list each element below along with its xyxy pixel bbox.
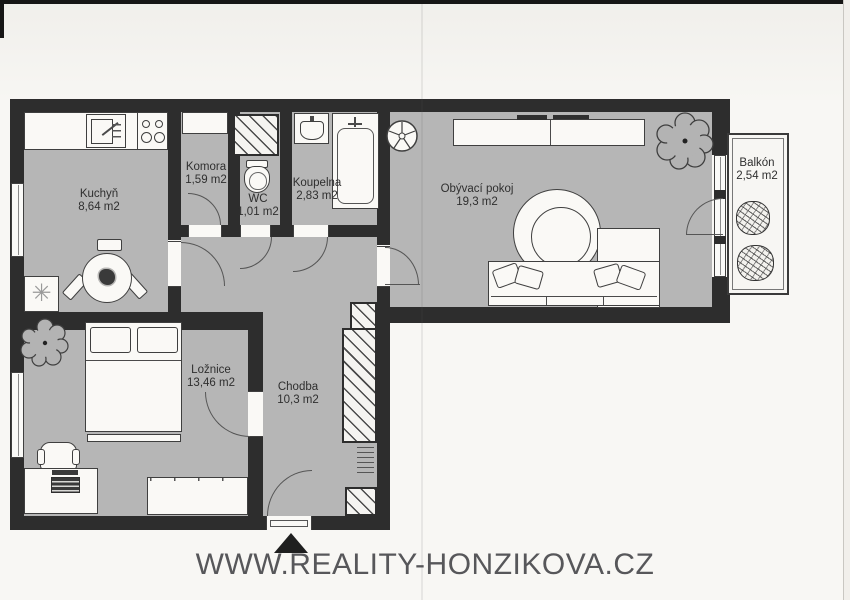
bed <box>85 322 182 432</box>
monitor-icon <box>52 470 78 475</box>
wall-wc-bathroom <box>280 99 292 237</box>
room-label-komora: Komora 1,59 m2 <box>185 161 227 187</box>
room-area: 8,64 m2 <box>78 201 120 214</box>
paper-fold-line <box>421 0 423 600</box>
room-area: 1,01 m2 <box>237 206 279 219</box>
balcony-chair-icon <box>736 201 770 235</box>
room-name: WC <box>237 193 279 206</box>
sink-drainer <box>112 124 121 140</box>
room-label-loznice: Ložnice 13,46 m2 <box>187 364 235 390</box>
wc-door-threshold <box>240 225 271 237</box>
sink-icon <box>86 114 126 148</box>
room-label-wc: WC 1,01 m2 <box>237 193 279 219</box>
watermark-text: WWW.REALITY-HONZIKOVA.CZ <box>196 548 655 582</box>
room-label-balkon: Balkón 2,54 m2 <box>736 157 778 183</box>
plant-icon <box>20 318 70 368</box>
wardrobe-marks <box>150 478 245 481</box>
paper-texture <box>0 0 850 100</box>
wall-living-south <box>377 307 730 323</box>
room-area: 13,46 m2 <box>187 377 235 390</box>
desk-chair <box>40 442 77 470</box>
fridge-snowflake-icon: ✳ <box>24 276 59 312</box>
room-area: 10,3 m2 <box>277 394 319 407</box>
sofa-cushion-divider <box>546 296 547 305</box>
room-label-kuchyn: Kuchyň 8,64 m2 <box>78 188 120 214</box>
keyboard-icon <box>51 477 80 493</box>
cabinet-handle <box>553 115 589 119</box>
sink-basin <box>91 119 113 144</box>
room-label-koupelna: Koupelna 2,83 m2 <box>293 177 342 203</box>
bed-pillow <box>137 327 178 353</box>
hallway-small-hatch <box>345 487 377 516</box>
room-name: Chodba <box>277 381 319 394</box>
room-name: Kuchyň <box>78 188 120 201</box>
kitchen-door-threshold <box>168 241 181 287</box>
bathtub-faucet <box>348 123 362 125</box>
room-area: 2,83 m2 <box>293 190 342 203</box>
scanner-edge-left <box>0 0 4 38</box>
bathtub-faucet <box>354 117 356 127</box>
room-label-chodba: Chodba 10,3 m2 <box>277 381 319 407</box>
sofa-cushion-divider <box>603 296 604 305</box>
blanket-edge <box>86 360 181 361</box>
floor-plan-scan: ✳ <box>0 0 850 600</box>
bedroom-window <box>11 372 24 458</box>
room-label-obyvaci-pokoj: Obývací pokoj 19,3 m2 <box>441 183 514 209</box>
room-name: Komora <box>185 161 227 174</box>
hallway-shaft-hatch <box>342 328 377 443</box>
toilet-icon <box>244 166 270 193</box>
wardrobe <box>147 477 248 515</box>
wall-bottom <box>10 516 390 530</box>
ventilation-shaft-hatch <box>233 114 279 156</box>
pantry-door-threshold <box>188 225 222 237</box>
living-room-door-leaf <box>385 284 420 285</box>
kitchen-window <box>11 183 24 257</box>
bedroom-door-threshold <box>248 391 263 437</box>
room-area: 19,3 m2 <box>441 196 514 209</box>
wall-top <box>10 99 730 112</box>
fan-icon <box>386 120 418 152</box>
room-area: 1,59 m2 <box>185 174 227 187</box>
wall-kitchen-east-upper <box>168 99 181 240</box>
bed-pillow <box>90 327 131 353</box>
washbasin-icon <box>294 113 329 144</box>
balcony-chair-icon <box>737 245 774 281</box>
cabinet-handle <box>517 115 547 120</box>
entrance-door-threshold <box>266 516 312 530</box>
chair-armrest <box>37 449 45 465</box>
table-centerpiece-icon <box>99 269 115 285</box>
room-name: Ložnice <box>187 364 235 377</box>
toilet-bowl <box>249 172 267 190</box>
bathroom-door-threshold <box>293 225 329 237</box>
washbasin-bowl <box>300 121 324 140</box>
washbasin-tap <box>310 116 314 121</box>
bathtub-inner <box>337 128 374 204</box>
bed-footboard <box>87 434 181 442</box>
chair-armrest <box>72 449 80 465</box>
stove-icon <box>137 112 168 150</box>
scanner-edge-top <box>0 0 844 4</box>
room-name: Balkón <box>736 157 778 170</box>
room-name: Koupelna <box>293 177 342 190</box>
kitchen-chair <box>97 239 122 251</box>
plant-icon <box>654 111 716 171</box>
cabinet-divider <box>550 120 551 145</box>
radiator-icon <box>357 447 374 475</box>
living-cabinet <box>453 119 645 146</box>
pantry-shelf <box>182 112 228 134</box>
sofa-seat-line <box>491 296 657 297</box>
round-chair <box>531 207 591 267</box>
entrance-door-leaf <box>270 520 308 527</box>
hallway-shaft-hatch-step <box>350 302 377 330</box>
scanner-margin-right <box>844 0 850 600</box>
balcony-door-leaf <box>686 234 723 235</box>
room-area: 2,54 m2 <box>736 170 778 183</box>
wall-hall-east <box>377 287 390 530</box>
glazing-mullion <box>714 236 726 244</box>
room-name: Obývací pokoj <box>441 183 514 196</box>
